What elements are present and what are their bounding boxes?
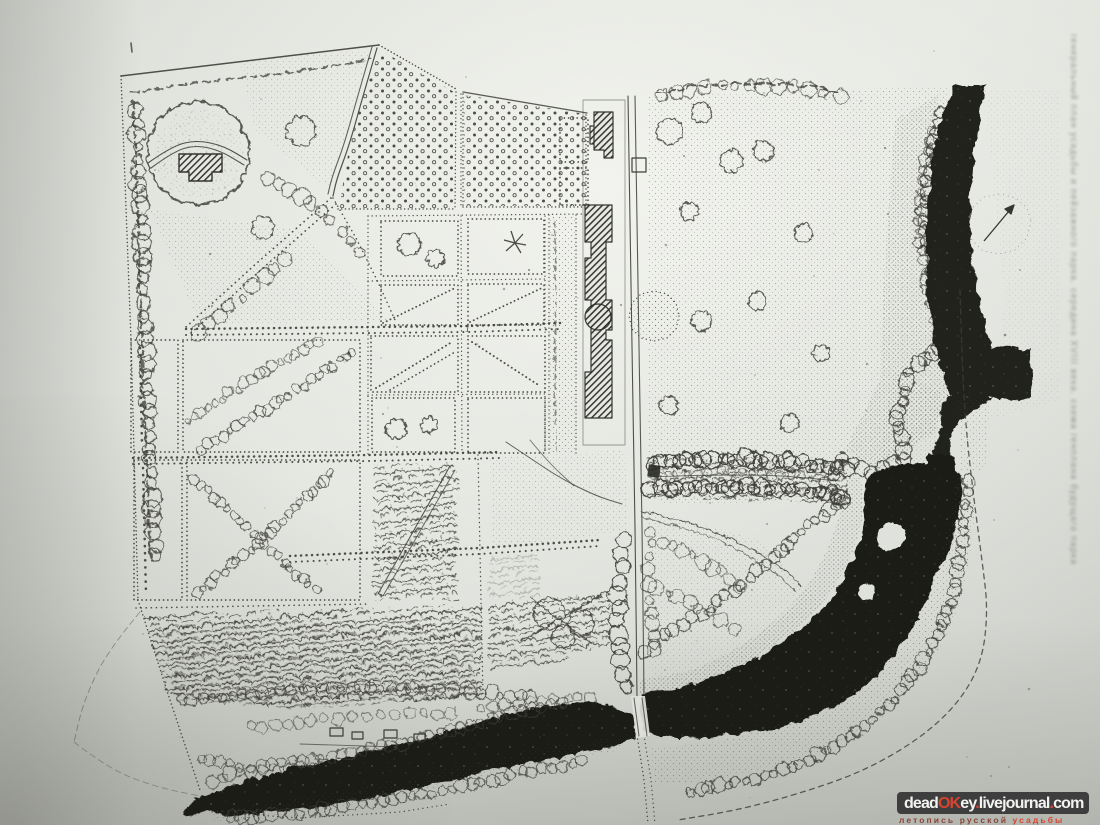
svg-text:генеральный план усадьбы и пей: генеральный план усадьбы и пейзажного па… (1069, 34, 1079, 565)
svg-text:deadOKey.livejournal.com: deadOKey.livejournal.com (904, 795, 1084, 812)
svg-text:летопись русской усадьбы: летопись русской усадьбы (899, 815, 1064, 825)
